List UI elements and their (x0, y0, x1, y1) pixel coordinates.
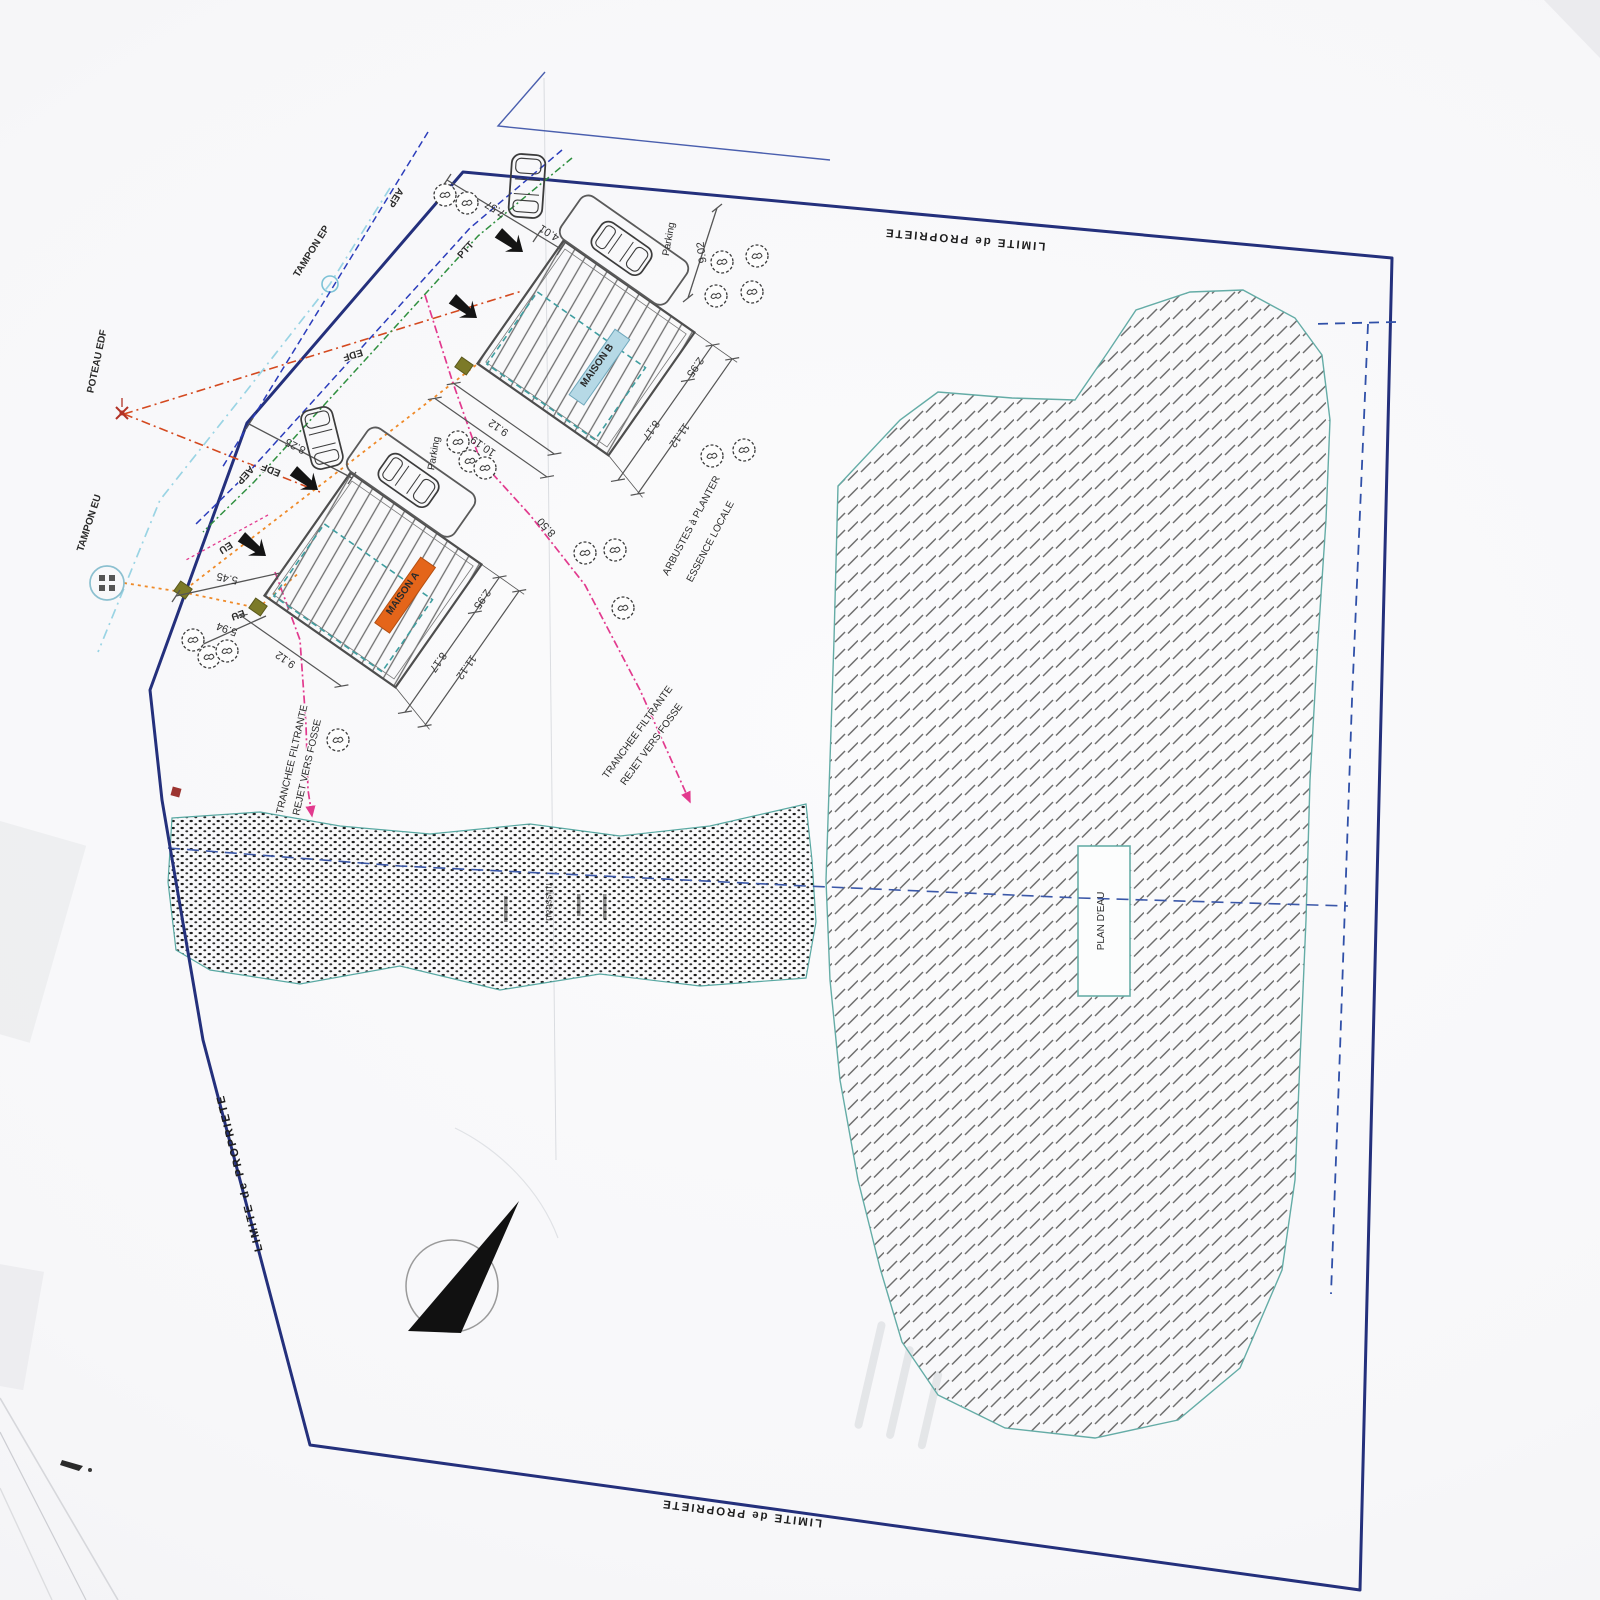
dim-front-1: 7.57 (483, 198, 508, 220)
dim-front-2: 4.01 (537, 222, 562, 244)
dim-gap-ab: 8.50 (535, 515, 558, 539)
dim-a-side2: 5.94 (215, 620, 239, 639)
scanned-site-plan: ruisseau PLAN D'EAU (0, 0, 1600, 1600)
pond-label: PLAN D'EAU (1096, 892, 1107, 951)
north-arrow (406, 1201, 519, 1333)
stream-label: ruisseau (543, 883, 554, 921)
tampon-eu-manhole (90, 566, 124, 600)
dim-a-front: 8.25 (283, 435, 308, 456)
dim-b-width: 9.12 (487, 416, 511, 438)
dim-a-depth-main: 8.17 (427, 650, 449, 674)
site-plan-drawing: ruisseau PLAN D'EAU (0, 0, 1600, 1600)
dim-b-terrace: 2.95 (684, 355, 706, 379)
stream-band: ruisseau (168, 804, 816, 990)
eu-line-label-2: EU (229, 607, 246, 622)
dim-a-width: 9.12 (274, 648, 298, 670)
pond-area: PLAN D'EAU (826, 290, 1330, 1438)
aep-line-entrance (222, 132, 428, 468)
parking-a-label: Parking (426, 436, 443, 471)
road-edge (498, 72, 830, 160)
inner-dashed-line-h (1312, 322, 1396, 324)
car-icon-lane (299, 405, 345, 471)
stream-band-area (168, 804, 816, 990)
shrubs-note: ARBUSTES à PLANTER ESSENCE LOCALE (661, 474, 737, 584)
tampon-eu-label: TAMPON EU (75, 493, 104, 553)
boundary-label-left: LIMITE de PROPRIETE (215, 1093, 266, 1253)
tampon-ep-label: TAMPON EP (292, 224, 333, 280)
dim-a-depth-total: 11.12 (453, 653, 478, 682)
dim-road: 9.02 (695, 241, 710, 264)
car-icon-road (508, 153, 546, 218)
boundary-label-top: LIMITE de PROPRIETE (884, 226, 1046, 252)
dim-b-depth-main: 8.17 (640, 418, 662, 442)
dim-a-side1: 5.45 (216, 570, 240, 587)
aep-line-label-1: AEP (385, 186, 405, 210)
poteau-edf-symbol (116, 398, 128, 419)
maison-b-group: MAISON B Parking 2.95 8.17 11.12 9.12 10… (421, 164, 783, 543)
scan-artifacts (0, 0, 1600, 1600)
inner-dashed-line-v (1331, 324, 1368, 1294)
dim-a-terrace: 2.95 (471, 587, 493, 611)
edf-line-label-2: EDF (260, 460, 283, 478)
boundary-marker (170, 786, 181, 797)
parking-b-label: Parking (661, 221, 678, 256)
dim-b-depth-total: 11.12 (666, 421, 691, 450)
poteau-edf-label: POTEAU EDF (85, 329, 109, 394)
maison-a-group: MAISON A Parking 2.95 8.17 11.12 9.12 (227, 398, 571, 754)
edf-line-label-1: EDF (342, 346, 364, 362)
